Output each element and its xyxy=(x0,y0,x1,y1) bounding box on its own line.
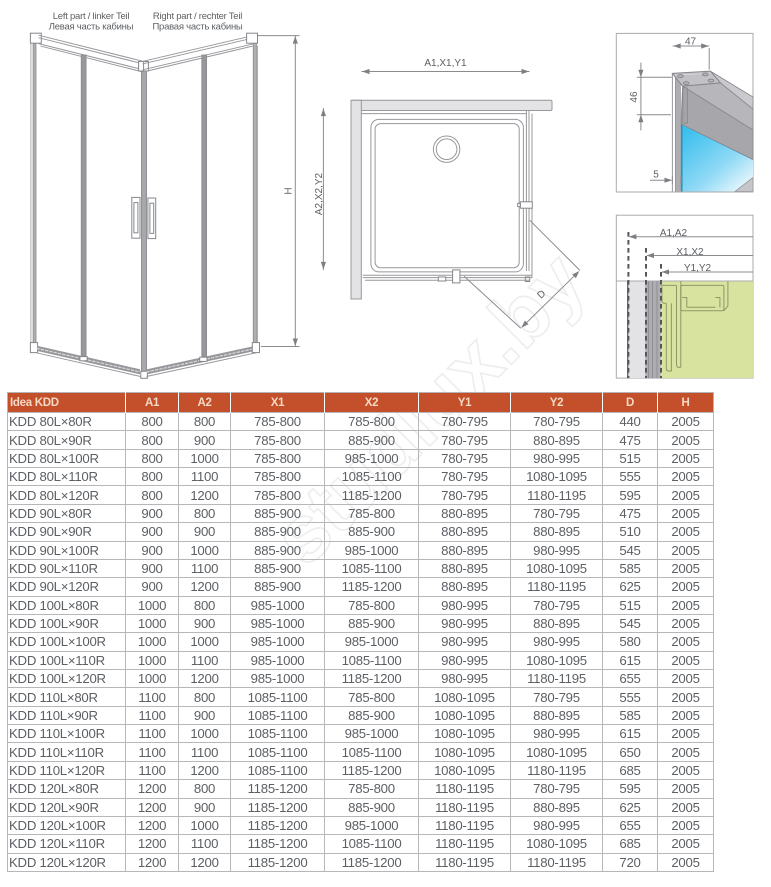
svg-text:A1,A2: A1,A2 xyxy=(660,228,688,239)
svg-text:A2,X2,Y2: A2,X2,Y2 xyxy=(314,172,325,215)
svg-text:X1,X2: X1,X2 xyxy=(676,247,704,258)
svg-text:Правая часть кабины: Правая часть кабины xyxy=(152,22,242,33)
svg-text:H: H xyxy=(284,187,295,194)
svg-text:47: 47 xyxy=(685,36,697,47)
svg-text:A1,X1,Y1: A1,X1,Y1 xyxy=(424,58,467,69)
svg-text:Left part / linker Teil: Left part / linker Teil xyxy=(53,11,130,22)
svg-text:Y1,Y2: Y1,Y2 xyxy=(684,263,712,274)
svg-text:Right part / rechter Teil: Right part / rechter Teil xyxy=(153,11,242,22)
svg-text:5: 5 xyxy=(653,170,659,181)
svg-text:46: 46 xyxy=(629,91,640,103)
svg-text:Левая часть кабины: Левая часть кабины xyxy=(49,22,134,33)
